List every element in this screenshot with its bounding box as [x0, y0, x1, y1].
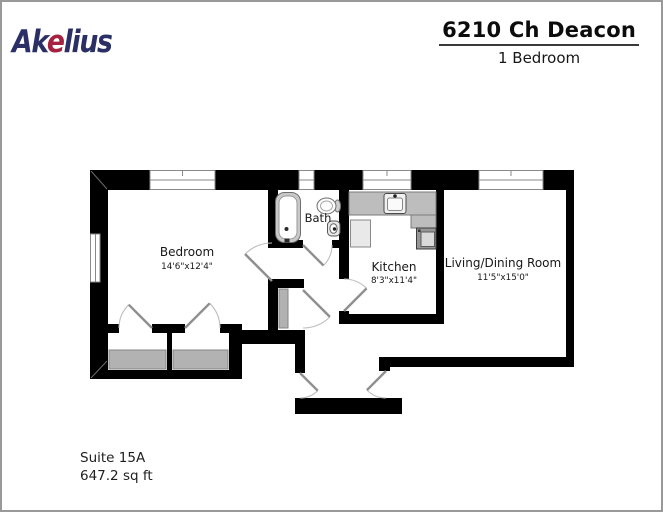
wall-segment: [411, 170, 479, 190]
bathtub: [276, 193, 301, 243]
closet-shelf: [173, 350, 228, 369]
wall-segment: [295, 344, 305, 373]
kitchen-sink: [384, 194, 406, 214]
bedroom-label: Bedroom: [160, 245, 214, 259]
wall-segment: [379, 357, 390, 371]
wall-segment: [566, 190, 574, 367]
wall-segment: [268, 279, 304, 288]
kitchen-label: Kitchen: [371, 260, 416, 274]
bedroom-side-window: [91, 234, 101, 282]
bedroom-door: [245, 243, 272, 281]
logo-text-start: Ak: [12, 24, 47, 60]
kitchen-door: [344, 279, 367, 311]
wall-segment: [152, 324, 185, 333]
entry-door-right: [367, 371, 386, 398]
wall-segment: [108, 324, 119, 333]
kitchen-dimensions: 8'3"x11'4": [371, 276, 417, 286]
bedroom-closet-door-right: [185, 303, 220, 328]
wall-segment: [220, 324, 229, 333]
wall-segment: [215, 170, 299, 190]
living-window: [479, 171, 543, 190]
bath-door: [303, 245, 332, 266]
bedroom-dimensions: 14'6"x12'4": [161, 262, 213, 272]
refrigerator: [351, 220, 371, 247]
akelius-logo: Akelius: [12, 24, 112, 60]
living-dimensions: 11'5"x15'0": [477, 273, 529, 283]
hall-closet-shelf: [279, 289, 288, 328]
wall-segment: [339, 314, 444, 324]
suite-info: Suite 15A 647.2 sq ft: [80, 450, 153, 486]
counter-return: [411, 215, 436, 228]
kitchen-window: [363, 171, 411, 190]
bath-label: Bath: [305, 211, 332, 225]
suite-area: 647.2 sq ft: [80, 468, 153, 486]
wall-segment: [90, 370, 242, 379]
unit-type-subtitle: 1 Bedroom: [439, 49, 639, 67]
wall-segment: [384, 357, 574, 367]
wall-segment: [436, 190, 444, 324]
title-block: 6210 Ch Deacon 1 Bedroom: [439, 18, 639, 67]
bedroom-window: [150, 171, 215, 190]
hall-closet-door: [303, 290, 330, 328]
wall-segment: [268, 281, 278, 330]
wall-segment: [229, 330, 305, 344]
logo-accent-letter: e: [47, 24, 64, 60]
stove: [417, 228, 437, 249]
wall-segment: [90, 190, 108, 379]
property-title: 6210 Ch Deacon: [439, 18, 639, 46]
entry-door-left: [300, 373, 318, 398]
wall-segment: [295, 398, 402, 414]
floorplan-svg: Bedroom 14'6"x12'4" Bath Kitchen 8'3"x11…: [86, 164, 582, 420]
bath-window: [299, 171, 314, 190]
floorplan-drawing: Bedroom 14'6"x12'4" Bath Kitchen 8'3"x11…: [86, 164, 582, 420]
wall-segment: [543, 170, 574, 190]
closet-shelf: [109, 350, 166, 369]
wall-segment: [314, 170, 363, 190]
living-label: Living/Dining Room: [445, 256, 561, 270]
wall-segment: [167, 333, 172, 370]
bedroom-closet-door-left: [119, 305, 152, 328]
closet-shelves: [109, 289, 288, 369]
suite-number: Suite 15A: [80, 450, 153, 468]
logo-text-end: lius: [64, 24, 112, 60]
floorplan-page: Akelius 6210 Ch Deacon 1 Bedroom: [0, 0, 663, 512]
